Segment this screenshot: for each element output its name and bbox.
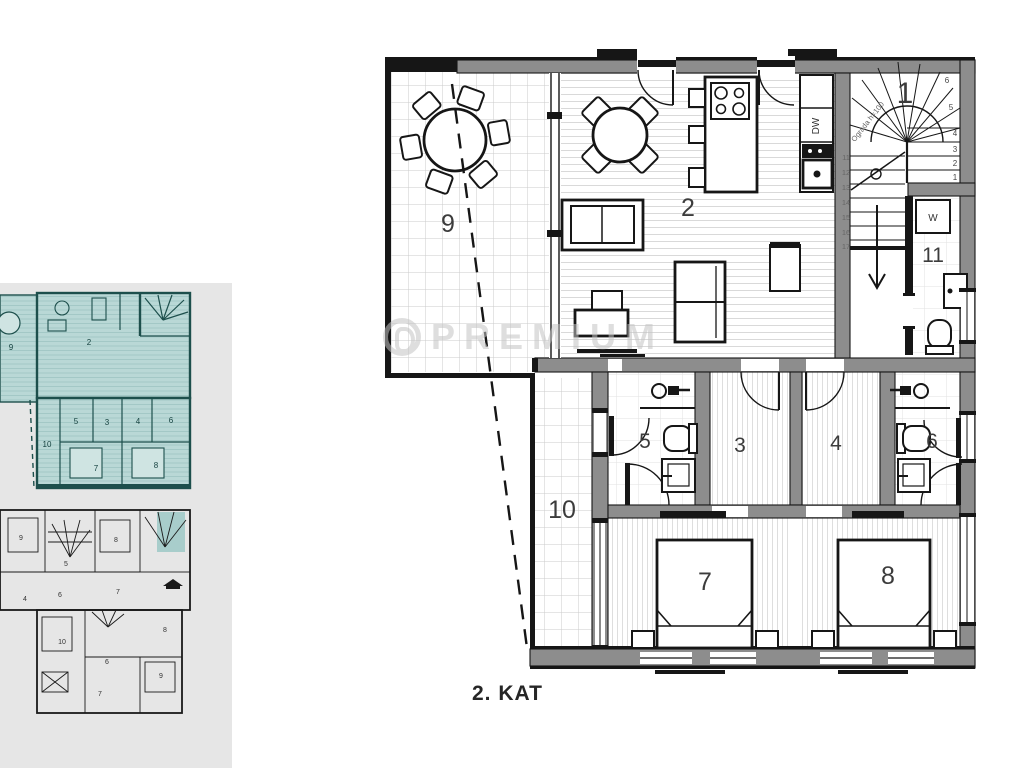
thumb-f1-stair-fan-lower [92, 610, 124, 627]
svg-text:15: 15 [842, 213, 850, 222]
floor-title: 2. KAT [472, 682, 543, 706]
washer-label: W [928, 213, 938, 224]
svg-text:4: 4 [23, 596, 27, 603]
room-label-9: 9 [441, 210, 455, 238]
thumb-stair-highlight [157, 512, 185, 552]
room-label-10: 10 [548, 496, 576, 524]
svg-text:3: 3 [105, 418, 110, 427]
svg-text:7: 7 [116, 589, 120, 596]
thumb-bed [8, 518, 38, 552]
svg-text:4: 4 [136, 417, 141, 426]
toilet [664, 426, 691, 451]
thumb-terrace-table [0, 312, 20, 334]
toilet-tank [689, 424, 697, 453]
nightstand [632, 631, 654, 648]
svg-text:6: 6 [169, 416, 174, 425]
thumbnail-floor1: 9 5 8 4 6 7 10 8 6 9 7 [0, 510, 190, 713]
svg-text:7: 7 [98, 691, 102, 698]
thumb-bed [70, 448, 102, 478]
bathroom-11-toilet [928, 320, 951, 348]
kitchen-counter: DW [800, 75, 833, 192]
svg-text:6: 6 [58, 592, 62, 599]
thumb-bed [100, 520, 130, 552]
svg-text:6: 6 [945, 76, 950, 85]
thumb-bed [42, 617, 72, 651]
svg-text:9: 9 [9, 343, 14, 352]
svg-text:1: 1 [953, 173, 958, 182]
svg-text:16: 16 [842, 228, 850, 237]
svg-text:11: 11 [842, 153, 850, 162]
thumb-bed [132, 448, 164, 478]
svg-text:10: 10 [43, 440, 52, 449]
room-label-2: 2 [681, 194, 695, 222]
svg-text:5: 5 [74, 417, 79, 426]
svg-text:9: 9 [19, 535, 23, 542]
svg-text:14: 14 [842, 198, 850, 207]
thumb-closet-x [42, 672, 68, 692]
svg-text:13: 13 [842, 183, 850, 192]
room-label-11: 11 [922, 244, 944, 267]
nightstand [934, 631, 956, 648]
svg-text:10: 10 [58, 639, 66, 646]
svg-text:9: 9 [159, 673, 163, 680]
svg-text:6: 6 [105, 659, 109, 666]
kitchen-island [689, 77, 757, 192]
stair-step-numbers-left: 11 12 13 14 15 16 17 [842, 153, 850, 251]
dishwasher-label: DW [811, 117, 822, 134]
svg-text:5: 5 [64, 561, 68, 568]
floor-plan-page: DW [0, 0, 1024, 768]
svg-text:2: 2 [953, 159, 958, 168]
svg-text:17: 17 [842, 242, 850, 251]
tv-cabinet [675, 262, 725, 342]
room-label-8: 8 [881, 562, 895, 590]
room-label-6: 6 [926, 430, 938, 453]
terrace-glass-wall [547, 73, 562, 358]
dining-table [581, 96, 659, 174]
bar-stool [689, 168, 705, 187]
thumb-f1-stair-fan-left [48, 520, 92, 557]
thumbnail-floor2-highlighted: 9 2 10 5 3 4 6 7 8 [0, 293, 190, 488]
armchair [770, 242, 800, 291]
bathroom-11-toilet-tank [926, 346, 953, 354]
oven [802, 144, 832, 158]
thumb-roof-icon [163, 579, 183, 586]
floor-plan-drawing: DW [0, 0, 1024, 768]
svg-text:4: 4 [953, 129, 958, 138]
nightstand [812, 631, 834, 648]
svg-text:2: 2 [87, 338, 92, 347]
svg-text:3: 3 [953, 145, 958, 154]
nightstand [756, 631, 778, 648]
room-label-4: 4 [830, 432, 842, 455]
svg-text:8: 8 [114, 537, 118, 544]
room-label-7: 7 [698, 568, 712, 596]
room-label-5: 5 [639, 430, 651, 453]
bar-stool [689, 89, 705, 107]
svg-text:5: 5 [949, 103, 954, 112]
svg-text:8: 8 [154, 461, 159, 470]
svg-text:12: 12 [842, 168, 850, 177]
svg-text:8: 8 [163, 627, 167, 634]
main-floor-plan: DW [385, 49, 976, 674]
room-label-3: 3 [734, 434, 746, 457]
svg-text:7: 7 [94, 464, 99, 473]
room-label-1: 1 [897, 77, 914, 110]
bar-stool [689, 126, 705, 143]
sofa [562, 200, 643, 250]
